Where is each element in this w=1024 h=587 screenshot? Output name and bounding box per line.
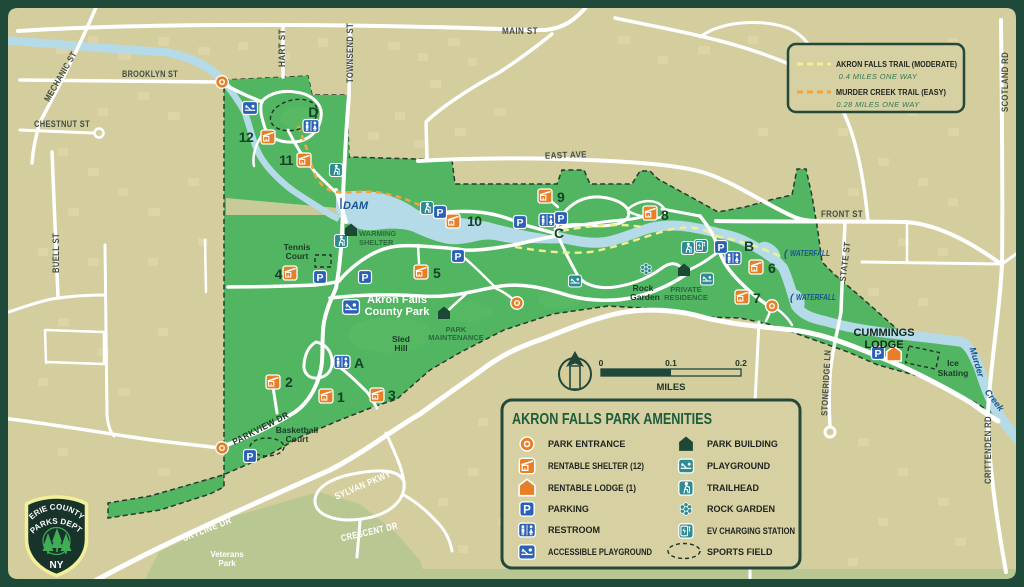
- svg-text:5: 5: [433, 265, 441, 281]
- svg-text:0.1: 0.1: [665, 358, 677, 368]
- svg-text:PARK BUILDING: PARK BUILDING: [707, 439, 778, 449]
- svg-text:EAST AVE: EAST AVE: [545, 149, 587, 160]
- svg-text:0.28 MILES ONE WAY: 0.28 MILES ONE WAY: [836, 100, 920, 109]
- svg-text:RENTABLE SHELTER (12): RENTABLE SHELTER (12): [548, 461, 644, 471]
- svg-text:9: 9: [557, 189, 565, 205]
- svg-text:ROCK GARDEN: ROCK GARDEN: [707, 504, 775, 514]
- svg-text:CHESTNUT ST: CHESTNUT ST: [34, 119, 90, 129]
- svg-text:10: 10: [467, 213, 482, 229]
- svg-text:Veterans: Veterans: [210, 550, 244, 559]
- svg-text:Court: Court: [286, 251, 309, 261]
- svg-text:PARKING: PARKING: [548, 504, 589, 514]
- svg-text:BUELL ST: BUELL ST: [51, 233, 61, 273]
- svg-text:MURDER CREEK TRAIL (EASY): MURDER CREEK TRAIL (EASY): [836, 88, 946, 97]
- svg-text:BROOKLYN ST: BROOKLYN ST: [122, 69, 178, 79]
- svg-text:TOWNSEND ST: TOWNSEND ST: [345, 23, 355, 83]
- svg-text:County Park: County Park: [365, 306, 431, 318]
- svg-text:Court: Court: [286, 434, 309, 444]
- svg-text:Akron Falls: Akron Falls: [367, 294, 427, 306]
- svg-text:PARK ENTRANCE: PARK ENTRANCE: [548, 439, 625, 449]
- svg-text:SPORTS FIELD: SPORTS FIELD: [707, 547, 773, 557]
- svg-text:8: 8: [661, 207, 669, 223]
- svg-text:12: 12: [239, 129, 254, 145]
- svg-text:Park: Park: [218, 559, 236, 568]
- svg-text:1: 1: [337, 389, 345, 405]
- svg-text:Garden: Garden: [630, 292, 660, 302]
- svg-text:AKRON FALLS TRAIL (MODERATE): AKRON FALLS TRAIL (MODERATE): [836, 60, 957, 69]
- svg-text:AKRON FALLS PARK AMENITIES: AKRON FALLS PARK AMENITIES: [512, 411, 712, 428]
- svg-text:C: C: [554, 225, 564, 241]
- svg-text:4: 4: [275, 266, 283, 282]
- svg-text:DAM: DAM: [343, 200, 369, 212]
- svg-text:HART ST: HART ST: [277, 29, 287, 67]
- svg-text:11: 11: [279, 152, 294, 168]
- svg-text:ACCESSIBLE PLAYGROUND: ACCESSIBLE PLAYGROUND: [548, 547, 652, 557]
- svg-text:0.2: 0.2: [735, 358, 747, 368]
- svg-text:CUMMINGS: CUMMINGS: [853, 327, 914, 339]
- svg-text:LODGE: LODGE: [864, 339, 903, 351]
- svg-text:7: 7: [753, 290, 761, 306]
- svg-text:RENTABLE LODGE (1): RENTABLE LODGE (1): [548, 483, 636, 493]
- svg-text:MAIN ST: MAIN ST: [502, 26, 538, 36]
- svg-text:MILES: MILES: [656, 382, 685, 393]
- svg-text:0.4 MILES ONE WAY: 0.4 MILES ONE WAY: [839, 72, 918, 81]
- svg-text:NY: NY: [50, 560, 64, 571]
- svg-text:0: 0: [599, 358, 604, 368]
- svg-text:WATERFALL: WATERFALL: [796, 292, 836, 302]
- svg-text:TRAILHEAD: TRAILHEAD: [707, 483, 759, 493]
- svg-text:A: A: [354, 355, 364, 371]
- svg-text:WATERFALL: WATERFALL: [790, 248, 830, 258]
- svg-text:RESIDENCE: RESIDENCE: [664, 293, 708, 302]
- svg-text:D: D: [308, 104, 318, 120]
- svg-text:2: 2: [285, 374, 293, 390]
- svg-text:FRONT ST: FRONT ST: [821, 209, 863, 219]
- svg-text:Skating: Skating: [938, 368, 969, 378]
- svg-text:CRITTENDEN RD: CRITTENDEN RD: [983, 416, 993, 484]
- svg-text:PLAYGROUND: PLAYGROUND: [707, 461, 771, 471]
- svg-text:EV CHARGING STATION: EV CHARGING STATION: [707, 526, 795, 536]
- svg-text:6: 6: [768, 260, 776, 276]
- svg-text:SHELTER: SHELTER: [359, 238, 394, 247]
- svg-text:RESTROOM: RESTROOM: [548, 525, 600, 535]
- svg-text:Hill: Hill: [394, 343, 407, 353]
- svg-text:SCOTLAND RD: SCOTLAND RD: [1000, 52, 1010, 112]
- svg-text:3: 3: [388, 387, 396, 403]
- svg-text:B: B: [744, 238, 754, 254]
- svg-text:MAINTENANCE: MAINTENANCE: [428, 333, 483, 342]
- svg-text:Ice: Ice: [947, 358, 959, 368]
- svg-text:WARMING: WARMING: [359, 229, 396, 238]
